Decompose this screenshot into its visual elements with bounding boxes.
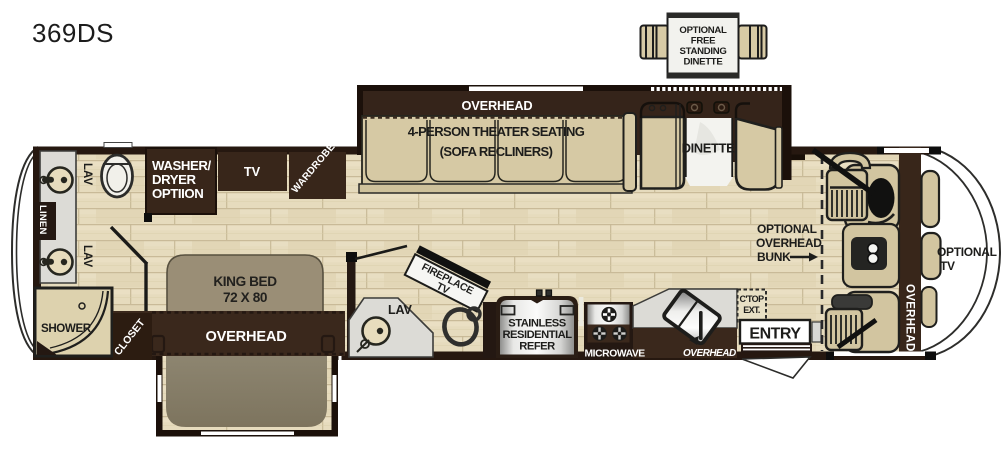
svg-text:OPTIONAL: OPTIONAL <box>679 25 727 36</box>
svg-text:OVERHEAD: OVERHEAD <box>683 348 736 359</box>
svg-text:ENTRY: ENTRY <box>749 326 801 343</box>
svg-text:LAV: LAV <box>81 245 93 267</box>
svg-text:MICROWAVE: MICROWAVE <box>585 349 646 360</box>
svg-text:FREE: FREE <box>691 36 716 47</box>
svg-text:RESIDENTIAL: RESIDENTIAL <box>502 329 572 341</box>
svg-text:REFER: REFER <box>519 341 555 353</box>
svg-text:STANDING: STANDING <box>680 46 727 57</box>
svg-text:DRYER: DRYER <box>152 172 197 187</box>
svg-text:STAINLESS: STAINLESS <box>508 318 566 330</box>
svg-text:TV: TV <box>940 259 955 273</box>
svg-text:4-PERSON THEATER SEATING: 4-PERSON THEATER SEATING <box>408 124 585 139</box>
svg-text:SHOWER: SHOWER <box>41 322 92 335</box>
svg-text:369DS: 369DS <box>32 18 114 48</box>
svg-text:DINETTE: DINETTE <box>682 141 736 156</box>
svg-text:KING BED: KING BED <box>213 274 277 289</box>
svg-text:WASHER/: WASHER/ <box>152 158 211 173</box>
svg-text:EXT.: EXT. <box>743 305 760 315</box>
svg-text:LAV: LAV <box>81 163 93 185</box>
svg-text:OVERHEAD: OVERHEAD <box>462 98 533 113</box>
svg-text:OVERHEAD: OVERHEAD <box>904 284 916 352</box>
svg-text:(SOFA RECLINERS): (SOFA RECLINERS) <box>440 144 553 159</box>
svg-text:LINEN: LINEN <box>37 205 48 235</box>
svg-text:BUNK: BUNK <box>757 250 791 264</box>
svg-text:LAV: LAV <box>388 303 412 317</box>
svg-text:TV: TV <box>244 164 261 179</box>
svg-text:OPTIONAL: OPTIONAL <box>937 245 997 259</box>
svg-text:72 X 80: 72 X 80 <box>223 290 267 305</box>
svg-text:OVERHEAD: OVERHEAD <box>205 329 286 345</box>
svg-text:OVERHEAD: OVERHEAD <box>756 236 822 250</box>
svg-text:C'TOP: C'TOP <box>740 294 765 304</box>
svg-text:DINETTE: DINETTE <box>684 57 724 68</box>
svg-text:OPTIONAL: OPTIONAL <box>757 222 817 236</box>
svg-text:OPTIION: OPTIION <box>152 186 203 201</box>
